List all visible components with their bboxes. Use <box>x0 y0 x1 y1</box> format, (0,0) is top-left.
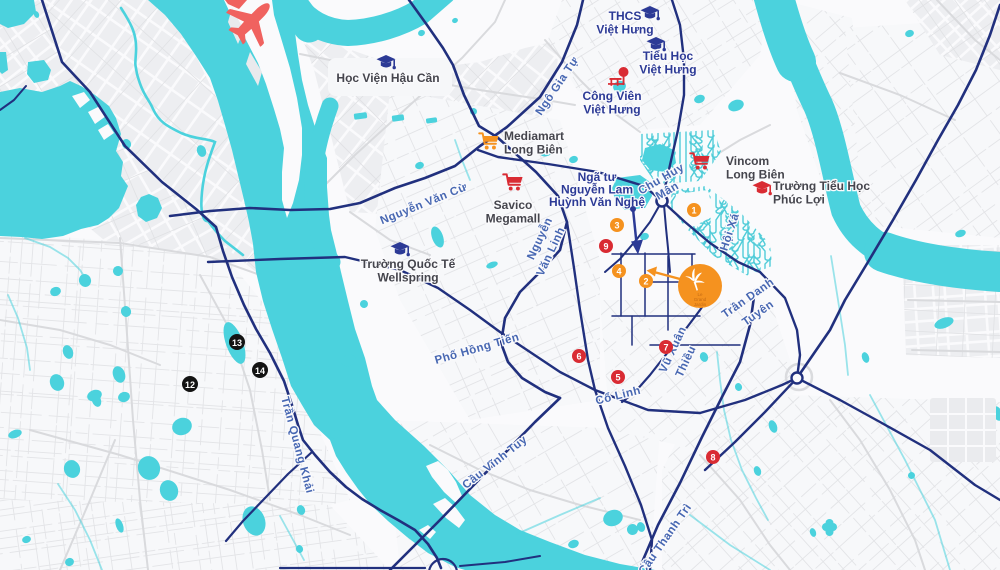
svg-text:5: 5 <box>615 372 620 382</box>
svg-text:Savico: Savico <box>494 198 533 212</box>
svg-text:Việt Hưng: Việt Hưng <box>596 23 653 37</box>
svg-text:3: 3 <box>614 220 619 230</box>
svg-text:Trường Quốc Tế: Trường Quốc Tế <box>361 257 456 271</box>
svg-text:8: 8 <box>710 452 715 462</box>
svg-text:12: 12 <box>185 380 195 390</box>
svg-text:1: 1 <box>691 205 696 215</box>
svg-text:2: 2 <box>643 276 648 286</box>
svg-text:Mediamart: Mediamart <box>504 129 564 143</box>
svg-text:9: 9 <box>603 241 608 251</box>
svg-text:Jardin: Jardin <box>694 302 707 307</box>
svg-text:Công Viên: Công Viên <box>582 89 641 103</box>
svg-text:Megamall: Megamall <box>486 212 541 226</box>
svg-text:13: 13 <box>232 338 242 348</box>
svg-text:Trường Tiểu Học: Trường Tiểu Học <box>773 179 870 193</box>
svg-text:Học Viện Hậu Cần: Học Viện Hậu Cần <box>336 71 439 85</box>
svg-text:Long Biên: Long Biên <box>504 143 563 157</box>
svg-text:14: 14 <box>255 366 265 376</box>
svg-text:Phúc Lợi: Phúc Lợi <box>773 193 825 207</box>
svg-text:6: 6 <box>576 351 581 361</box>
svg-text:Tiểu Học: Tiểu Học <box>643 49 694 63</box>
svg-text:Vincom: Vincom <box>726 154 769 168</box>
svg-text:4: 4 <box>616 266 621 276</box>
svg-text:Việt Hưng: Việt Hưng <box>583 103 640 117</box>
svg-text:7: 7 <box>663 342 668 352</box>
svg-text:Việt Hưng: Việt Hưng <box>639 63 696 77</box>
svg-text:Wellspring: Wellspring <box>377 271 438 285</box>
svg-text:THCS: THCS <box>609 9 642 23</box>
